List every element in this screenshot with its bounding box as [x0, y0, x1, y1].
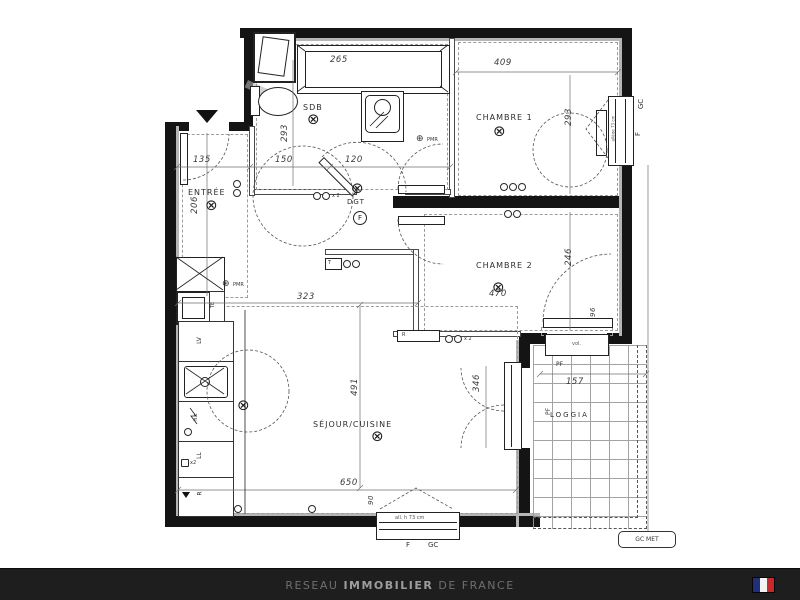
dim-hall-width: 150	[275, 155, 293, 165]
room-label-chambre1: CHAMBRE 1	[476, 113, 533, 122]
socket-dot	[445, 335, 453, 343]
dim-line-sejour-vert	[357, 302, 363, 491]
socket-count-label: x 2	[332, 193, 340, 199]
pmr-label: PMR	[427, 137, 438, 143]
dim-window-width: 90	[367, 495, 375, 505]
pmr-marker-icon: ⊕	[222, 279, 230, 289]
sejour-window-casement	[380, 488, 453, 509]
pf-label-top: PF	[556, 361, 563, 368]
footer-bar: RESEAU IMMOBILIER DE FRANCE	[0, 568, 800, 600]
dim-dgt-width: 120	[345, 155, 363, 165]
socket-dot	[233, 189, 241, 197]
pf-label-left: PF	[545, 408, 552, 415]
pf-door-upper-arc	[461, 368, 504, 411]
gc-met-label: GC MET	[635, 536, 658, 543]
ceiling-light-icon: ⊗	[351, 181, 364, 196]
socket-count-label: x 2	[464, 336, 472, 342]
dim-entree-height: 206	[190, 196, 200, 214]
socket-dot	[234, 505, 242, 513]
floor-plan-canvas: allège 73 cm all. h 73 cm vol.	[0, 0, 800, 568]
ceiling-light-icon: ⊗	[493, 124, 506, 139]
pmr-marker-icon: ⊕	[416, 134, 424, 144]
dim-sejour-width: 650	[340, 478, 358, 488]
socket-dot	[322, 192, 330, 200]
socket-dot	[518, 183, 526, 191]
floor-plan-page: allège 73 cm all. h 73 cm vol.	[0, 0, 800, 600]
ceiling-light-icon: ⊗	[205, 198, 218, 213]
footer-brand-suffix: DE FRANCE	[438, 579, 514, 592]
dim-chambre2-width: 470	[489, 289, 507, 299]
dim-loggia-width: 157	[566, 377, 584, 387]
socket-dot	[308, 505, 316, 513]
socket-dot	[513, 210, 521, 218]
dim-loggia-door: 96	[589, 307, 597, 317]
dim-chambre2-height: 246	[564, 248, 574, 266]
bathtub-corner-lines	[297, 45, 448, 92]
french-flag-icon	[753, 578, 774, 592]
window-type-label-f: F	[634, 132, 642, 136]
footer-brand: RESEAU IMMOBILIER DE FRANCE	[285, 579, 514, 592]
dim-line-entree-top	[174, 164, 453, 170]
chambre2-loggia-door-arc	[543, 254, 611, 322]
closet-cross-lines	[176, 257, 223, 290]
ceiling-light-icon: ⊗	[371, 429, 384, 444]
window-type-label-f: F	[406, 541, 410, 549]
dim-line-loggia	[537, 371, 649, 377]
dim-bathtub: 265	[330, 55, 348, 65]
dim-entree-width: 135	[193, 155, 211, 165]
footer-brand-prefix: RESEAU	[285, 579, 338, 592]
ceiling-light-icon: ⊗	[237, 398, 250, 413]
chambre1-window-casement	[586, 100, 608, 158]
dim-chambre1-height: 293	[564, 108, 574, 126]
sink-cross-lines	[186, 368, 224, 394]
gc-met-tag: GC MET	[618, 531, 676, 548]
socket-dot	[509, 183, 517, 191]
socket-dot	[454, 335, 462, 343]
dim-sejour-height: 491	[350, 378, 360, 396]
washbasin-arrows	[370, 112, 388, 128]
socket-dot	[233, 180, 241, 188]
ceiling-light-icon: ⊗	[307, 112, 320, 127]
plan-linework	[0, 0, 800, 568]
circled-f-marker: F	[353, 211, 367, 225]
room-label-chambre2: CHAMBRE 2	[476, 261, 533, 270]
socket-dot	[500, 183, 508, 191]
socket-dot	[504, 210, 512, 218]
dim-sejour-top: 323	[297, 292, 315, 302]
dim-sdb-height: 293	[280, 124, 290, 142]
pf-door-lower-arc	[461, 405, 504, 448]
room-label-dgt: DGT	[347, 198, 365, 206]
dim-pf-height: 346	[472, 374, 482, 392]
dim-chambre1-width: 409	[494, 58, 512, 68]
socket-dot	[313, 192, 321, 200]
window-type-label-gc: GC	[637, 99, 645, 109]
worktop-lightning	[190, 408, 197, 424]
pmr-label: PMR	[233, 282, 244, 288]
room-label-loggia: LOGGIA	[550, 411, 589, 419]
window-type-label-gc: GC	[428, 541, 438, 549]
chambre2-door-arc	[398, 219, 443, 264]
chambre1-door-arc	[398, 144, 443, 189]
dim-line-chambre1-top	[453, 69, 621, 75]
footer-brand-bold: IMMOBILIER	[343, 579, 433, 592]
